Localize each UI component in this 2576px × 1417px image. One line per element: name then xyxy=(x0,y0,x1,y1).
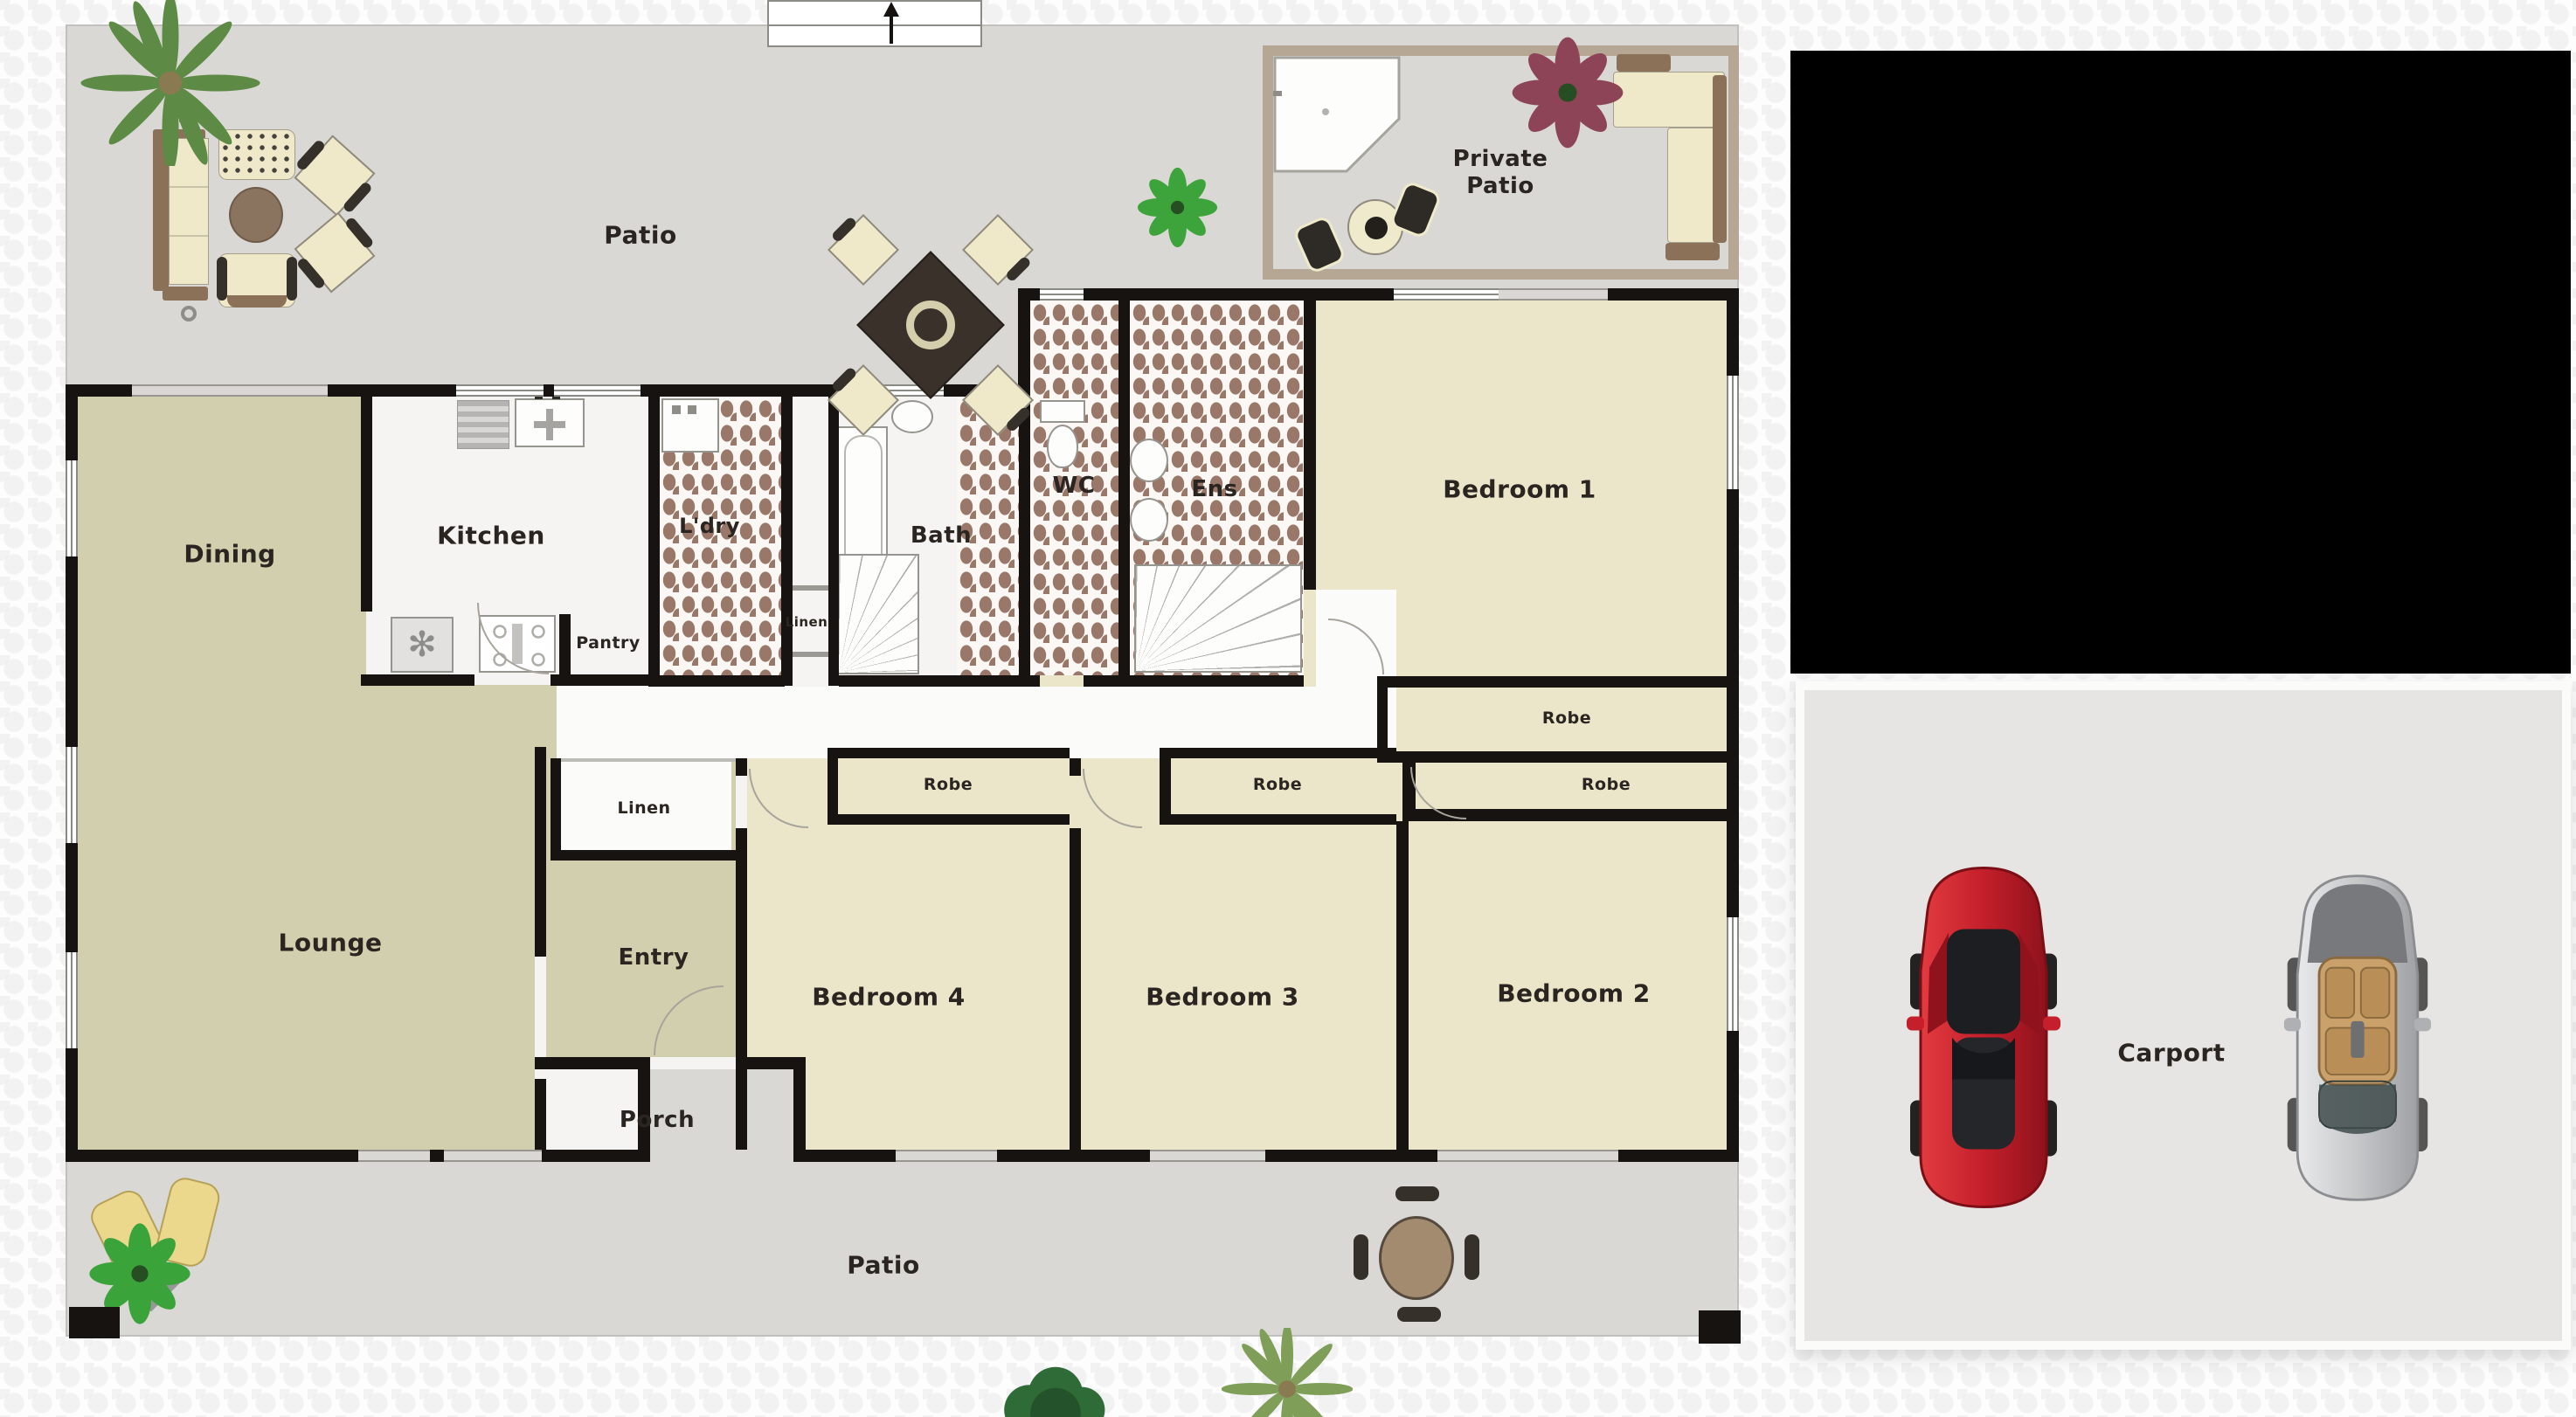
window xyxy=(456,384,548,397)
chair-arm xyxy=(287,257,297,301)
corner-shower-icon xyxy=(1273,56,1401,173)
fridge-icon xyxy=(457,400,509,449)
wall xyxy=(66,384,78,460)
patio-chair xyxy=(1395,1186,1439,1201)
label-lounge: Lounge xyxy=(279,929,383,957)
wall xyxy=(66,1048,78,1162)
closet-opening-line xyxy=(561,758,737,762)
wall xyxy=(1388,751,1727,763)
wall xyxy=(1396,821,1409,1150)
window xyxy=(66,747,78,843)
wall xyxy=(361,674,474,686)
wall xyxy=(551,674,658,686)
wall xyxy=(1388,676,1727,688)
window xyxy=(1437,1150,1618,1162)
wall xyxy=(535,747,546,957)
palm-tree-icon xyxy=(1222,1328,1353,1417)
label-wc: WC xyxy=(1053,473,1096,499)
label-patio-top: Patio xyxy=(604,221,676,250)
label-linen-hall: Linen xyxy=(617,798,670,818)
label-robe3: Robe xyxy=(1253,775,1302,794)
redacted-photo-block xyxy=(1790,51,2571,674)
window xyxy=(1150,1150,1265,1162)
wall xyxy=(1618,1150,1739,1162)
wall xyxy=(648,397,660,686)
sofa-arm xyxy=(163,287,208,301)
patio-chair xyxy=(1465,1234,1479,1280)
label-kitchen: Kitchen xyxy=(437,522,545,550)
side-table-icon xyxy=(181,306,197,321)
window xyxy=(1727,917,1739,1031)
chair-arm xyxy=(217,257,227,301)
label-carport: Carport xyxy=(2117,1039,2225,1068)
label-bedroom3: Bedroom 3 xyxy=(1146,983,1299,1012)
wall xyxy=(744,1057,793,1069)
label-robe1: Robe xyxy=(1542,708,1591,728)
window xyxy=(896,1150,997,1162)
wall xyxy=(542,1150,650,1162)
sink-icon xyxy=(515,398,585,447)
wall xyxy=(828,748,1070,758)
door-opening xyxy=(1499,288,1608,301)
sofa-back-rail xyxy=(1713,75,1727,243)
wall xyxy=(430,1150,444,1162)
wall xyxy=(1084,675,1304,687)
round-coffee-table xyxy=(229,187,283,243)
shower-icon xyxy=(1134,564,1302,673)
wall xyxy=(1608,288,1739,301)
round-patio-table xyxy=(1379,1216,1454,1300)
wall xyxy=(1018,288,1030,397)
north-box-line xyxy=(769,24,980,26)
floorplan-canvas: ✻ xyxy=(0,0,2576,1417)
wall xyxy=(828,758,838,814)
wall xyxy=(828,814,1070,825)
label-laundry: L'dry xyxy=(679,514,740,538)
north-indicator xyxy=(767,0,982,47)
wall xyxy=(1118,301,1130,675)
wall xyxy=(793,1150,896,1162)
wall xyxy=(1160,814,1396,825)
dishwasher-icon: ✻ xyxy=(391,617,454,673)
label-robe4: Robe xyxy=(924,775,973,794)
wall xyxy=(1727,489,1739,917)
label-bedroom1: Bedroom 1 xyxy=(1443,475,1596,504)
palm-tree-icon xyxy=(74,0,267,166)
north-arrow-icon xyxy=(879,2,904,45)
wall xyxy=(551,850,737,861)
label-bedroom4: Bedroom 4 xyxy=(812,983,966,1012)
green-plant-icon xyxy=(1136,166,1219,249)
wall xyxy=(1304,301,1316,590)
wall xyxy=(736,828,747,1150)
wall xyxy=(781,397,793,686)
window xyxy=(1727,376,1739,489)
wall xyxy=(1030,288,1040,301)
wall xyxy=(66,556,78,747)
chair-back xyxy=(227,295,287,308)
wall xyxy=(66,843,78,952)
wall xyxy=(551,758,561,861)
toilet-bowl-icon xyxy=(1047,425,1078,468)
label-dining: Dining xyxy=(184,540,275,569)
label-bedroom2: Bedroom 2 xyxy=(1497,979,1651,1008)
l-sofa-seat xyxy=(1613,72,1725,128)
washing-machine-icon xyxy=(661,398,719,453)
wall xyxy=(1727,288,1739,376)
window xyxy=(66,460,78,556)
bush-icon xyxy=(977,1352,1134,1417)
patio-chair xyxy=(1397,1307,1441,1322)
room-open-plan xyxy=(366,685,557,747)
maroon-plant-icon xyxy=(1510,33,1625,152)
window xyxy=(444,1150,542,1162)
silver-convertible-icon xyxy=(2282,863,2433,1213)
room-dining xyxy=(78,397,366,747)
wall xyxy=(328,384,456,397)
wall-corner xyxy=(1699,1310,1741,1344)
label-robe2: Robe xyxy=(1582,775,1631,794)
window xyxy=(358,1150,430,1162)
wall xyxy=(1727,1031,1739,1162)
label-pantry: Pantry xyxy=(576,633,641,653)
sliding-door-opening xyxy=(132,384,328,397)
toilet-cistern-icon xyxy=(1040,400,1085,423)
window xyxy=(554,384,641,397)
wall xyxy=(1084,288,1394,301)
patio-chair xyxy=(1354,1234,1368,1280)
wall xyxy=(839,675,1040,687)
sofa-back-block xyxy=(1665,243,1720,260)
wall xyxy=(361,397,372,612)
label-porch: Porch xyxy=(620,1107,695,1133)
wall-corner xyxy=(69,1307,120,1338)
wall xyxy=(544,384,554,397)
label-bath: Bath xyxy=(911,522,972,549)
wall xyxy=(1160,748,1396,758)
basin-icon xyxy=(1130,498,1168,542)
wall xyxy=(997,1150,1150,1162)
basin-icon xyxy=(1130,439,1168,482)
wall xyxy=(736,758,747,776)
wall xyxy=(1160,758,1171,814)
label-patio-bottom: Patio xyxy=(847,1251,919,1280)
window xyxy=(1394,288,1499,301)
wall xyxy=(535,1057,650,1069)
wall xyxy=(793,1057,806,1162)
wall xyxy=(66,1150,358,1162)
red-sports-car-icon xyxy=(1905,861,2062,1214)
window xyxy=(66,952,78,1048)
basin-icon xyxy=(891,400,933,433)
door-opening xyxy=(1040,288,1084,301)
label-private-patio: Private Patio xyxy=(1426,146,1575,200)
wall xyxy=(1265,1150,1437,1162)
label-entry: Entry xyxy=(619,944,689,971)
wall xyxy=(1070,758,1081,776)
label-ens: Ens xyxy=(1191,476,1237,502)
shower-icon xyxy=(837,554,919,674)
wall xyxy=(648,675,785,687)
wall xyxy=(1070,828,1081,1150)
room-bedroom1 xyxy=(1316,301,1727,590)
label-linen-bath: Linen xyxy=(786,614,828,630)
wall xyxy=(828,397,839,686)
